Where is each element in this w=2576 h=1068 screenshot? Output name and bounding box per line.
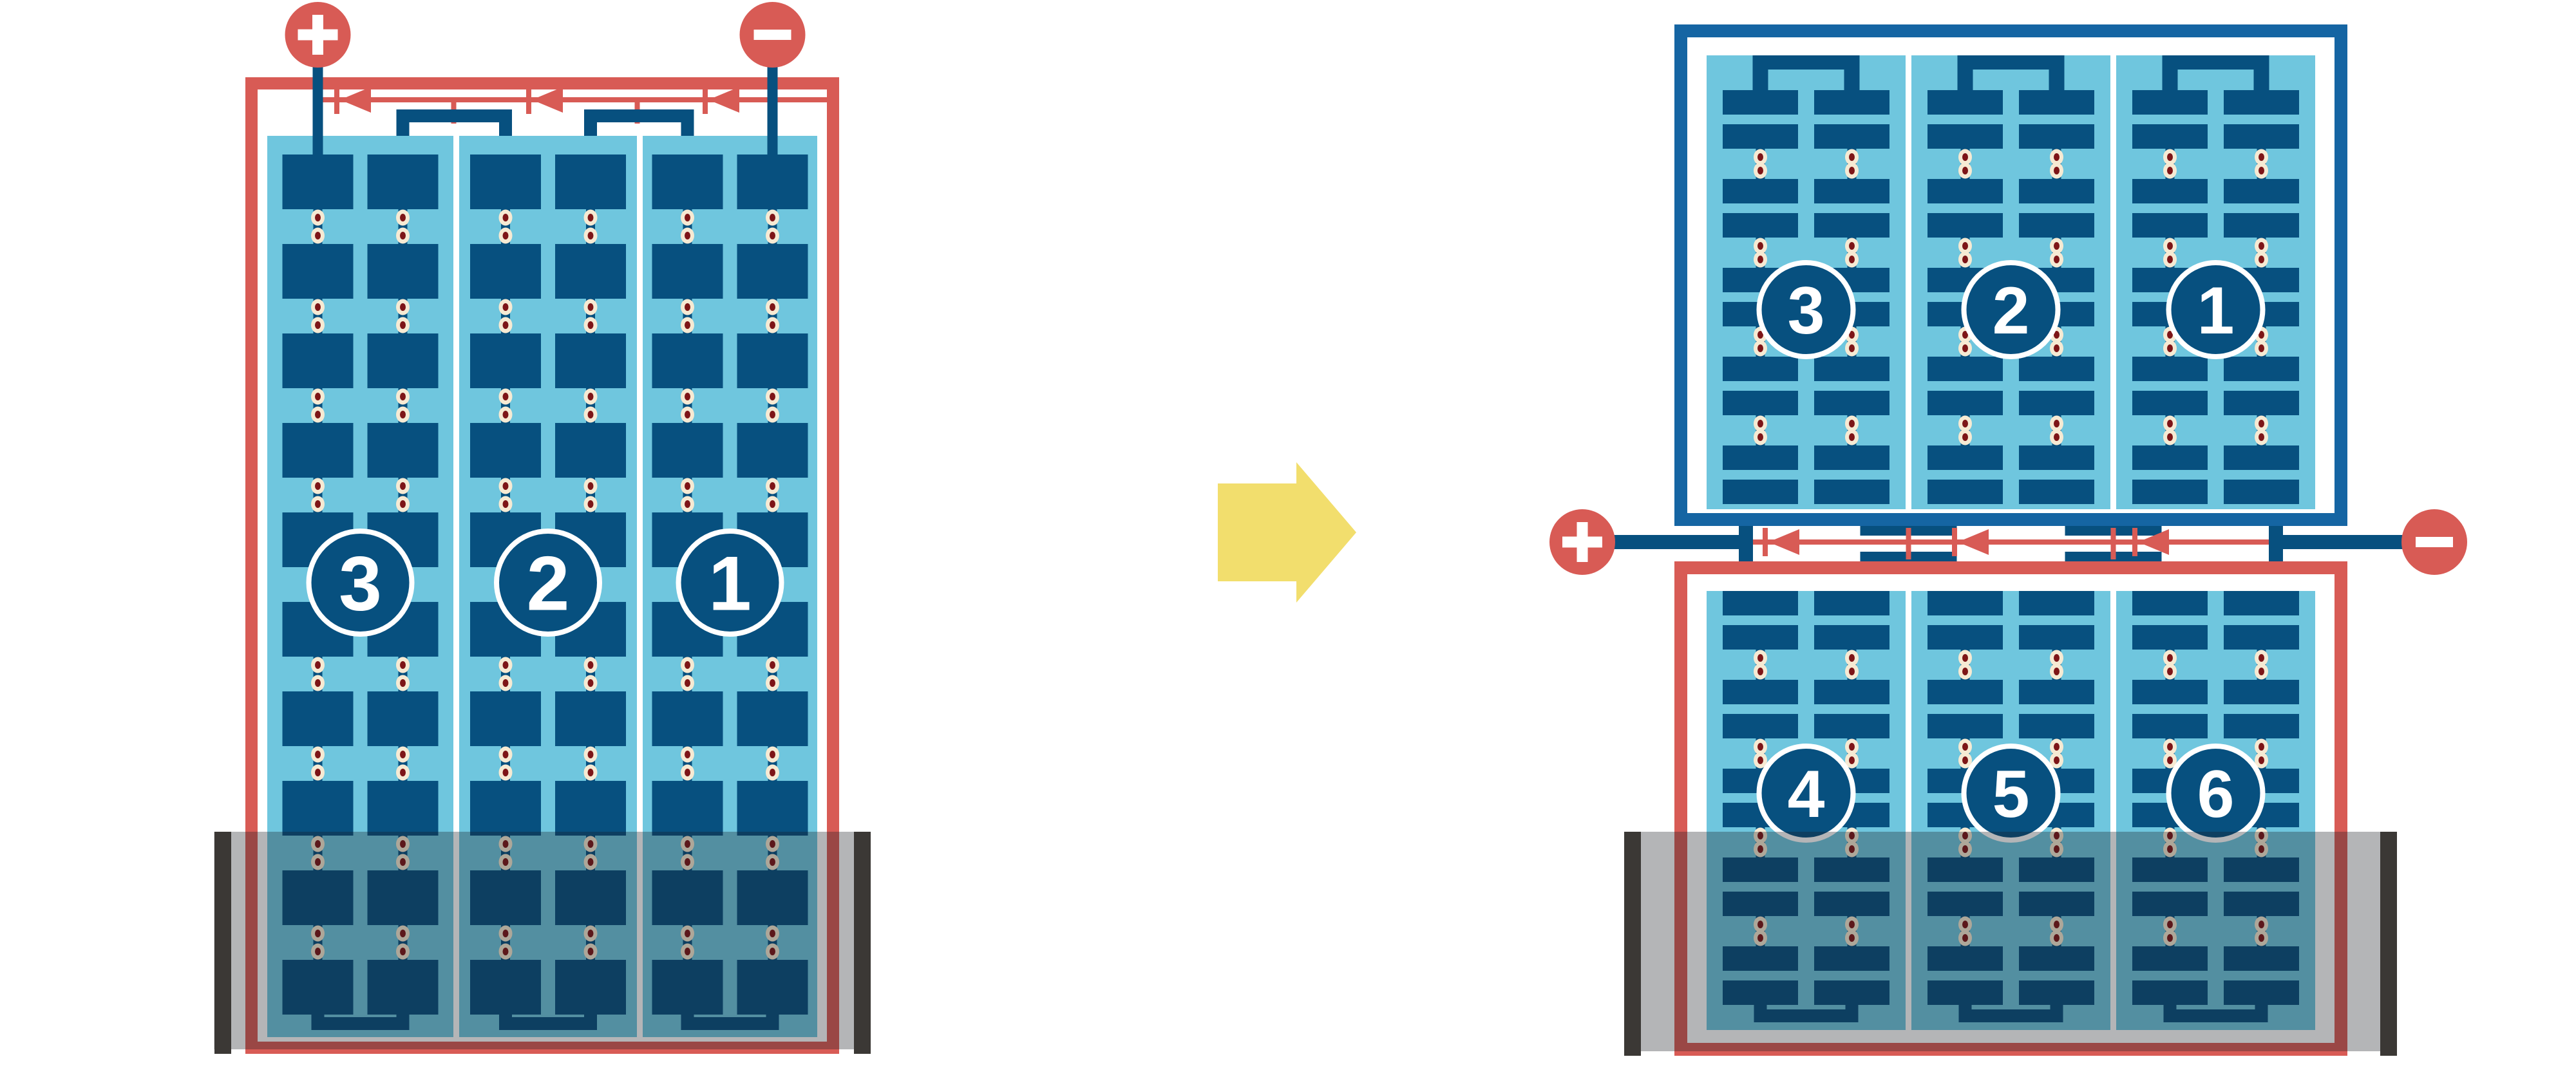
string-gap: [1906, 55, 1911, 509]
solder-dot-core: [770, 482, 775, 490]
solder-dot-core: [1849, 654, 1855, 662]
solder-dot-core: [2259, 256, 2264, 263]
solar-half-cell: [1814, 591, 1889, 615]
diode-cathode-bar: [703, 86, 708, 114]
solder-dot-core: [1849, 242, 1855, 250]
solar-half-cell: [2132, 480, 2208, 504]
solder-dot-core: [685, 751, 690, 758]
solder-dot-core: [588, 303, 594, 311]
solder-dot-core: [503, 769, 509, 776]
plus-glyph: [312, 15, 323, 55]
solder-dot-core: [2167, 167, 2173, 174]
solder-dot-core: [685, 321, 690, 329]
solder-dot-core: [2167, 420, 2173, 427]
solder-dot-core: [503, 393, 509, 400]
solder-dot-core: [2054, 256, 2060, 263]
solder-dot-core: [685, 661, 690, 669]
solder-dot-core: [2167, 756, 2173, 764]
solder-dot-core: [1962, 668, 1968, 675]
positive-terminal-icon: [1549, 509, 1615, 575]
terminal-stem: [313, 67, 323, 174]
solar-cell: [652, 423, 723, 478]
solder-dot-core: [503, 411, 509, 418]
solder-dot-core: [315, 679, 321, 687]
bypass-diode-icon: [340, 87, 371, 113]
solder-dot-core: [315, 751, 321, 758]
solder-dot-core: [1962, 167, 1968, 174]
top-bridge-connector: [1958, 55, 2065, 70]
top-bridge-connector: [397, 109, 513, 122]
solder-dot-core: [685, 769, 690, 776]
solder-dot-core: [588, 661, 594, 669]
solder-dot-core: [1757, 433, 1763, 441]
solder-dot-core: [315, 214, 321, 221]
solder-dot-core: [2259, 668, 2264, 675]
solder-dot-core: [2259, 756, 2264, 764]
solder-dot-core: [503, 232, 509, 239]
solder-dot-core: [400, 500, 406, 508]
solar-cell: [283, 691, 354, 746]
solar-module-wiring-diagram: 321321456: [0, 0, 2576, 1068]
top-half-frame-left: [1674, 24, 1687, 526]
string-number-label: 3: [339, 541, 382, 627]
solder-dot-core: [770, 232, 775, 239]
solder-dot-core: [1849, 420, 1855, 427]
solder-dot-core: [2054, 433, 2060, 441]
solder-dot-core: [2167, 344, 2173, 352]
shade-overlay: [214, 832, 871, 1049]
solder-dot-core: [400, 214, 406, 221]
solder-dot-core: [2259, 433, 2264, 441]
diode-bus-line: [313, 97, 833, 102]
solder-dot-core: [1849, 433, 1855, 441]
solar-cell: [555, 691, 626, 746]
solar-cell: [283, 244, 354, 299]
solder-dot-core: [2167, 743, 2173, 751]
solar-cell: [737, 691, 808, 746]
solder-dot-core: [685, 393, 690, 400]
solar-half-cell: [2019, 90, 2094, 115]
solder-dot-core: [503, 500, 509, 508]
minus-glyph: [2416, 537, 2453, 547]
solar-half-cell: [1723, 591, 1798, 615]
top-bridge-connector: [1753, 55, 1860, 70]
solar-cell: [652, 155, 723, 209]
solar-cell: [470, 244, 541, 299]
solar-cell: [368, 155, 439, 209]
solder-dot-core: [400, 303, 406, 311]
bypass-diode-icon: [708, 87, 739, 113]
solder-dot-core: [315, 661, 321, 669]
string-number-label: 5: [1993, 757, 2030, 832]
solder-dot-core: [1757, 242, 1763, 250]
solder-dot-core: [503, 751, 509, 758]
solder-dot-core: [400, 751, 406, 758]
solder-dot-core: [1962, 756, 1968, 764]
solder-dot-core: [315, 500, 321, 508]
bottom-half-frame-top: [1674, 561, 2347, 574]
string-number-label: 2: [527, 541, 570, 627]
bypass-diode-icon: [1768, 529, 1799, 555]
solder-dot-core: [2259, 654, 2264, 662]
solar-half-cell: [1927, 90, 2003, 115]
solder-dot-core: [2259, 167, 2264, 174]
solar-cell: [470, 155, 541, 209]
solder-dot-core: [1849, 756, 1855, 764]
solder-dot-core: [400, 321, 406, 329]
solder-dot-core: [2167, 654, 2173, 662]
solder-dot-core: [315, 411, 321, 418]
solder-dot-core: [588, 500, 594, 508]
solder-dot-core: [1849, 167, 1855, 174]
solder-dot-core: [1962, 420, 1968, 427]
solder-dot-core: [588, 769, 594, 776]
solder-dot-core: [2259, 344, 2264, 352]
solar-cell: [283, 423, 354, 478]
solar-cell: [555, 423, 626, 478]
solar-half-cell: [2224, 90, 2299, 115]
solder-dot-core: [315, 321, 321, 329]
solder-dot-core: [1962, 743, 1968, 751]
diode-cathode-bar: [526, 86, 531, 114]
solder-dot-core: [1962, 242, 1968, 250]
top-half-frame-top: [1674, 24, 2347, 37]
solder-dot-core: [2167, 242, 2173, 250]
solar-cell: [737, 333, 808, 388]
string-number-label: 3: [1788, 274, 1825, 348]
solder-dot-core: [1757, 668, 1763, 675]
solder-dot-core: [1849, 344, 1855, 352]
solar-cell: [652, 691, 723, 746]
solar-cell: [470, 423, 541, 478]
solder-dot-core: [588, 214, 594, 221]
solder-dot-core: [1962, 153, 1968, 161]
solder-dot-core: [1757, 153, 1763, 161]
solder-dot-core: [1849, 153, 1855, 161]
solder-dot-core: [2259, 153, 2264, 161]
solar-half-cell: [1927, 480, 2003, 504]
minus-glyph: [754, 30, 791, 40]
solar-cell: [368, 333, 439, 388]
diode-cathode-bar: [334, 86, 339, 114]
solder-dot-core: [588, 679, 594, 687]
solar-cell: [555, 781, 626, 836]
diode-cathode-bar: [1763, 528, 1768, 556]
solar-cell: [368, 244, 439, 299]
solar-cell: [283, 781, 354, 836]
solar-cell: [368, 781, 439, 836]
shade-edge-bar: [854, 832, 871, 1054]
solar-half-cell: [2132, 591, 2208, 615]
solder-dot-core: [685, 303, 690, 311]
solder-dot-core: [770, 303, 775, 311]
solder-dot-core: [2054, 167, 2060, 174]
solder-dot-core: [2054, 153, 2060, 161]
solder-dot-core: [1757, 344, 1763, 352]
solder-dot-core: [588, 393, 594, 400]
solder-dot-core: [2054, 743, 2060, 751]
solder-dot-core: [503, 679, 509, 687]
solar-cell: [555, 155, 626, 209]
solder-dot-core: [315, 303, 321, 311]
string-number-label: 2: [1993, 274, 2030, 348]
solar-half-cell: [1927, 591, 2003, 615]
transition-arrow-icon: [1218, 462, 1356, 603]
solder-dot-core: [588, 321, 594, 329]
terminal-stem: [768, 67, 778, 174]
solar-cell: [652, 781, 723, 836]
solder-dot-core: [770, 751, 775, 758]
negative-terminal-icon: [2401, 509, 2467, 575]
solder-dot-core: [588, 482, 594, 490]
solder-dot-core: [2054, 242, 2060, 250]
solder-dot-core: [770, 411, 775, 418]
solder-dot-core: [1962, 344, 1968, 352]
solder-dot-core: [685, 482, 690, 490]
solder-dot-core: [1962, 256, 1968, 263]
junction-bus-bar: [2283, 535, 2403, 549]
solder-dot-core: [400, 482, 406, 490]
solder-dot-core: [315, 393, 321, 400]
solar-half-cell: [1723, 480, 1798, 504]
solar-cell: [368, 691, 439, 746]
solar-cell: [555, 333, 626, 388]
solder-dot-core: [685, 232, 690, 239]
solar-half-cell: [2132, 90, 2208, 115]
solder-dot-core: [2167, 153, 2173, 161]
bypass-diode-icon: [532, 87, 563, 113]
solder-dot-core: [2054, 668, 2060, 675]
solder-dot-core: [400, 661, 406, 669]
bypass-diode-icon: [1958, 529, 1989, 555]
solar-cell: [652, 244, 723, 299]
solder-dot-core: [503, 303, 509, 311]
solder-dot-core: [770, 500, 775, 508]
left-module-full-cell: 321: [214, 2, 871, 1054]
shade-edge-bar: [2380, 832, 2397, 1056]
junction-wall: [1739, 526, 1753, 561]
top-half-frame-right: [2334, 24, 2347, 526]
solder-dot-core: [770, 679, 775, 687]
solder-dot-core: [503, 661, 509, 669]
solder-dot-core: [315, 482, 321, 490]
solar-cell: [737, 244, 808, 299]
solder-dot-core: [1962, 654, 1968, 662]
solder-dot-core: [400, 769, 406, 776]
solder-dot-core: [400, 232, 406, 239]
solder-dot-core: [770, 393, 775, 400]
solder-dot-core: [400, 679, 406, 687]
solder-dot-core: [685, 679, 690, 687]
solder-dot-core: [1757, 654, 1763, 662]
solder-dot-core: [2054, 654, 2060, 662]
solar-cell: [368, 423, 439, 478]
solder-dot-core: [2259, 743, 2264, 751]
right-module-half-cut: 321456: [1549, 24, 2467, 1056]
negative-terminal-icon: [740, 2, 806, 68]
solar-half-cell: [1723, 90, 1798, 115]
solder-dot-core: [2167, 668, 2173, 675]
solder-dot-core: [1757, 256, 1763, 263]
solder-dot-core: [1757, 420, 1763, 427]
solar-half-cell: [2224, 591, 2299, 615]
solar-half-cell: [2019, 480, 2094, 504]
positive-terminal-icon: [285, 2, 351, 68]
string-number-label: 6: [2197, 757, 2235, 832]
solder-dot-core: [2054, 420, 2060, 427]
diagram-svg: 321321456: [0, 0, 2576, 1068]
solder-dot-core: [1849, 256, 1855, 263]
solder-dot-core: [2259, 420, 2264, 427]
solder-dot-core: [1849, 668, 1855, 675]
solder-dot-core: [770, 661, 775, 669]
solder-dot-core: [685, 500, 690, 508]
string-number-label: 4: [1788, 757, 1825, 832]
solder-dot-core: [400, 393, 406, 400]
solder-dot-core: [503, 321, 509, 329]
solder-dot-core: [770, 214, 775, 221]
solder-dot-core: [1849, 743, 1855, 751]
solder-dot-core: [685, 214, 690, 221]
shade-overlay: [1624, 832, 2397, 1051]
shade-edge-bar: [214, 832, 231, 1054]
solar-cell: [470, 781, 541, 836]
solder-dot-core: [2167, 433, 2173, 441]
solder-dot-core: [770, 769, 775, 776]
diode-cathode-bar: [2132, 528, 2137, 556]
solar-half-cell: [1814, 90, 1889, 115]
solder-dot-core: [685, 411, 690, 418]
solder-dot-core: [2167, 256, 2173, 263]
top-bridge-connector: [584, 109, 694, 122]
solar-half-cell: [1814, 480, 1889, 504]
string-gap: [2110, 55, 2116, 509]
solar-cell: [283, 333, 354, 388]
solar-cell: [652, 333, 723, 388]
solder-dot-core: [1757, 743, 1763, 751]
solder-dot-core: [770, 321, 775, 329]
junction-wall: [2269, 526, 2283, 561]
solder-dot-core: [2054, 756, 2060, 764]
solder-dot-core: [2259, 242, 2264, 250]
solar-cell: [737, 781, 808, 836]
solar-cell: [737, 423, 808, 478]
solar-cell: [555, 244, 626, 299]
top-half-frame-bottom: [1674, 513, 2347, 526]
solder-dot-core: [1757, 167, 1763, 174]
solder-dot-core: [503, 214, 509, 221]
solder-dot-core: [503, 482, 509, 490]
solder-dot-core: [315, 232, 321, 239]
solder-dot-core: [315, 769, 321, 776]
solder-dot-core: [1757, 756, 1763, 764]
diode-bus-line: [1753, 539, 2269, 545]
solder-dot-core: [2054, 344, 2060, 352]
solder-dot-core: [1962, 433, 1968, 441]
string-number-label: 1: [708, 541, 752, 627]
shade-edge-bar: [1624, 832, 1641, 1056]
solar-half-cell: [2224, 480, 2299, 504]
solder-dot-core: [588, 751, 594, 758]
plus-glyph: [1577, 522, 1588, 562]
string-number-label: 1: [2197, 274, 2235, 348]
solder-dot-core: [588, 411, 594, 418]
solar-cell: [470, 691, 541, 746]
top-bridge-connector: [2163, 55, 2269, 70]
solar-cell: [470, 333, 541, 388]
diode-cathode-bar: [1952, 528, 1957, 556]
junction-bus-bar: [1614, 535, 1739, 549]
solder-dot-core: [400, 411, 406, 418]
solar-half-cell: [2019, 591, 2094, 615]
solder-dot-core: [588, 232, 594, 239]
